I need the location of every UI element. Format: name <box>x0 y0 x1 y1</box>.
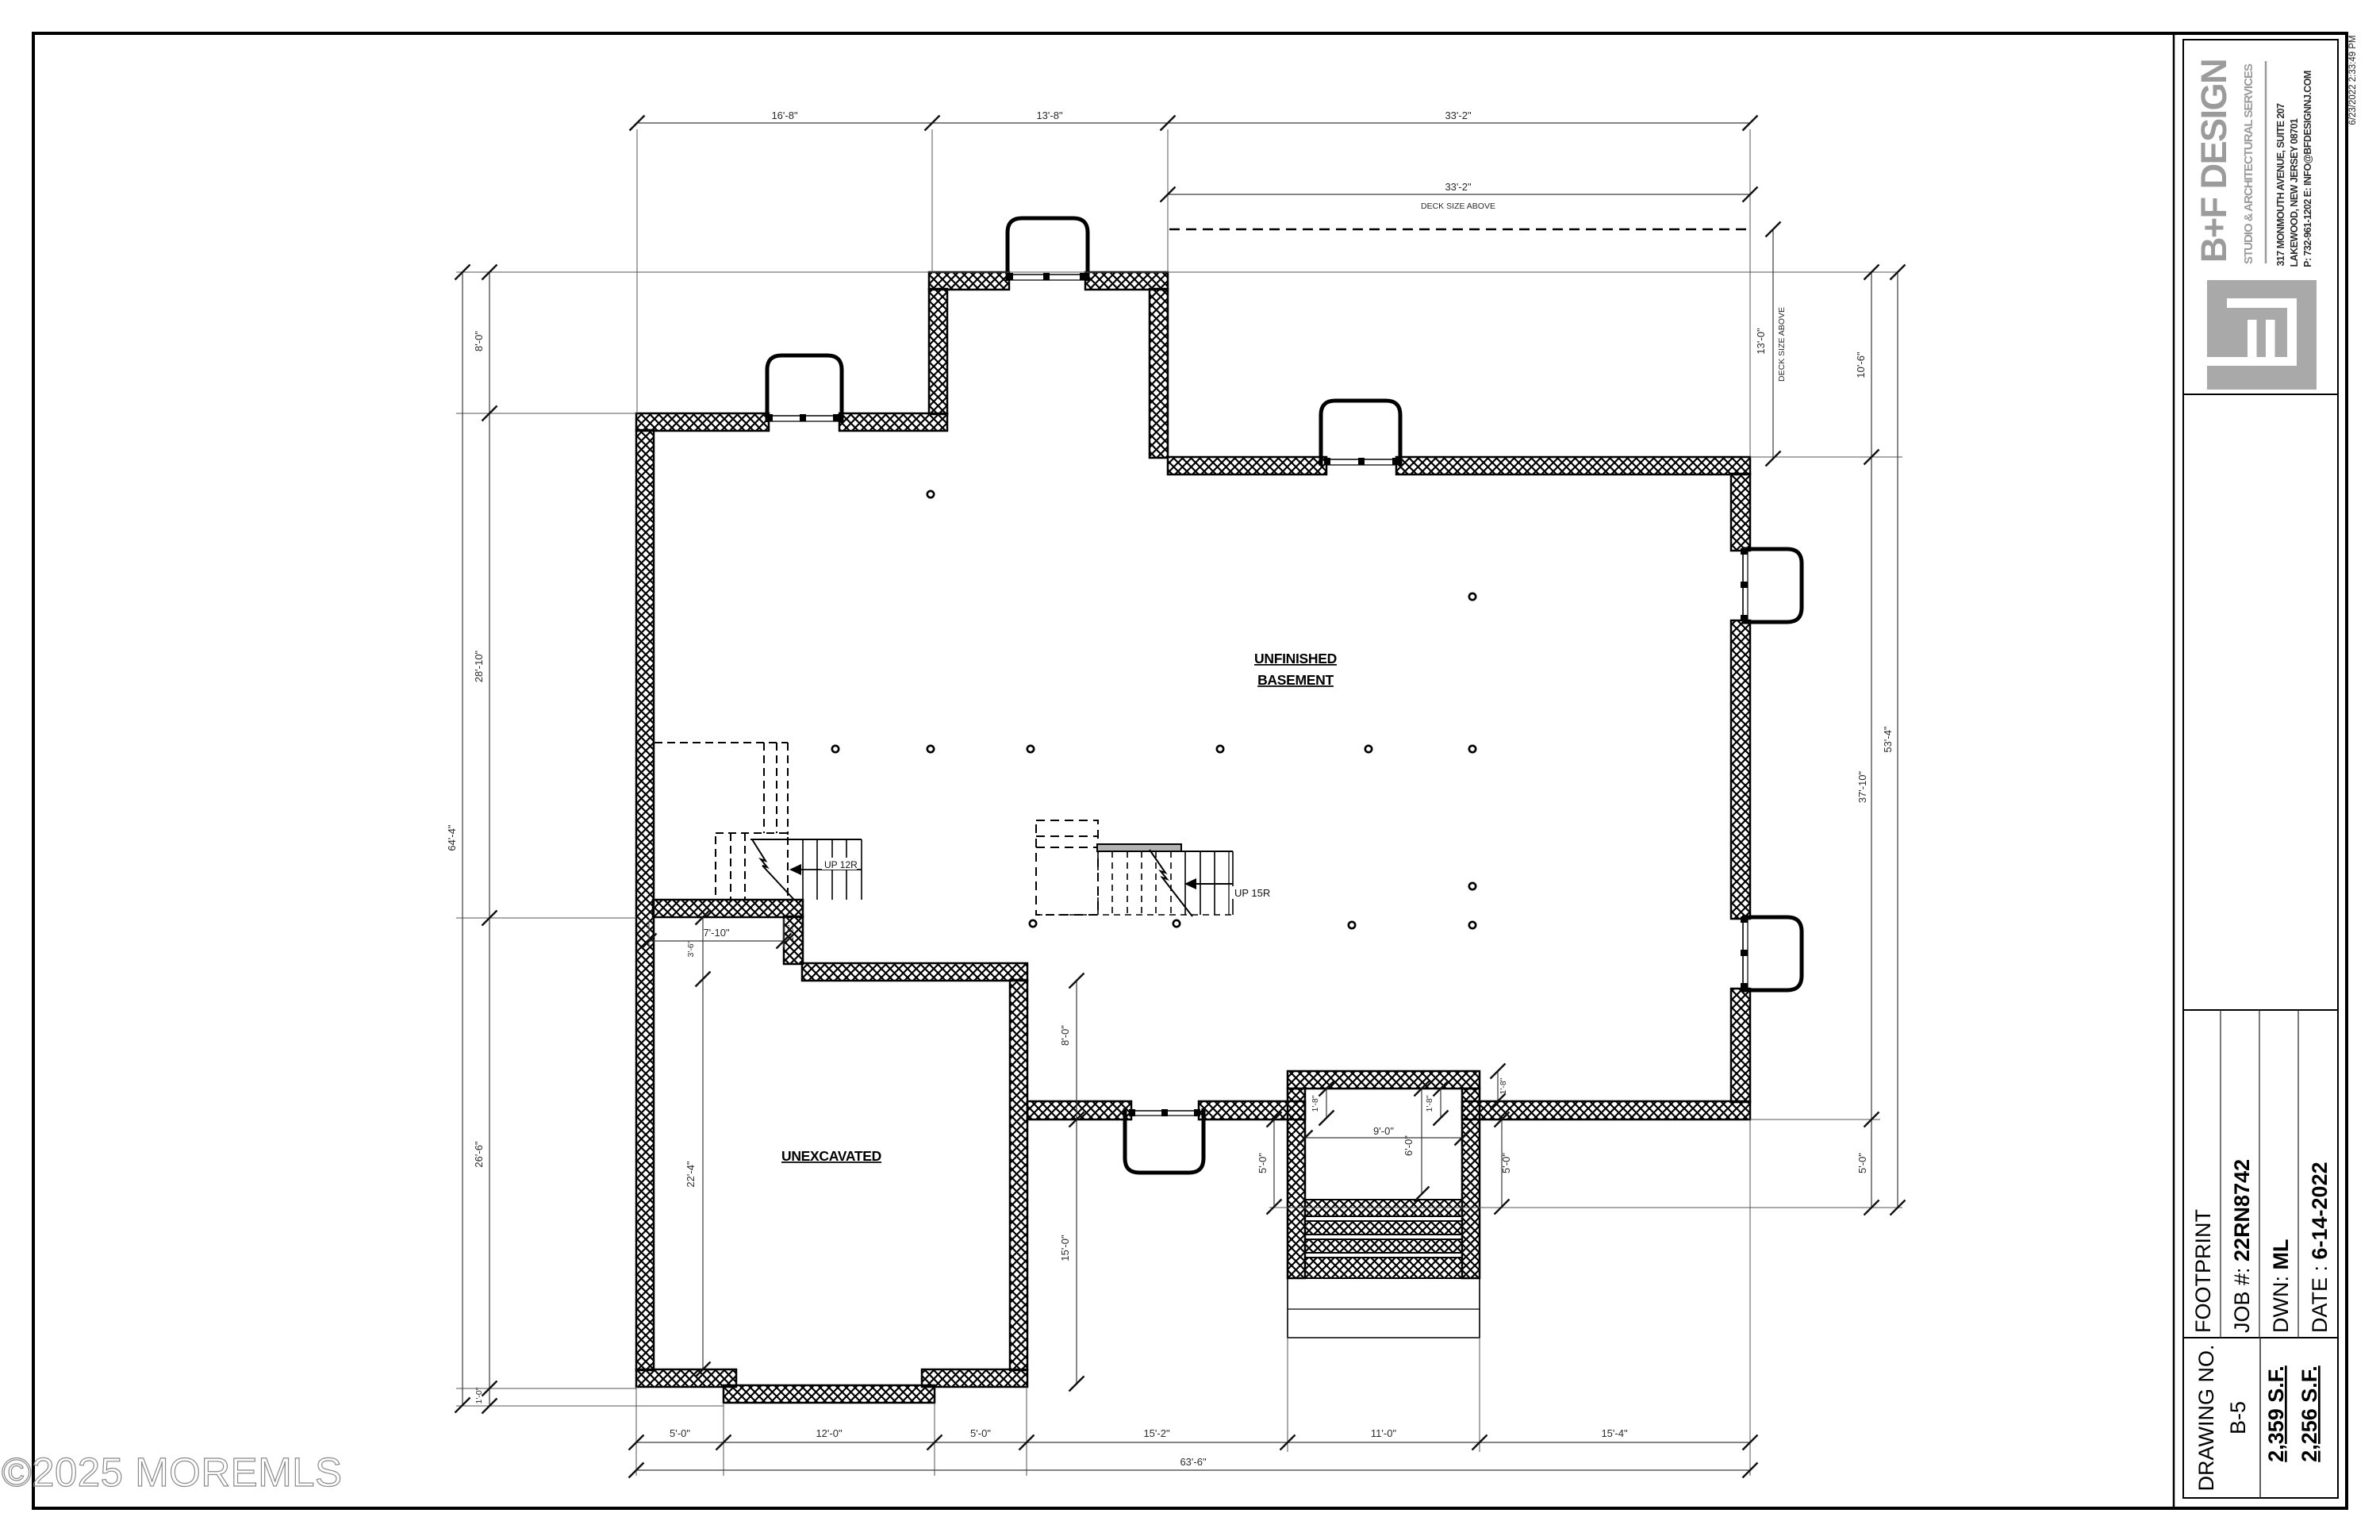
svg-text:1'-0": 1'-0" <box>474 1387 484 1404</box>
svg-text:53'-4": 53'-4" <box>1882 726 1894 753</box>
svg-text:UNFINISHED: UNFINISHED <box>1254 651 1337 666</box>
svg-text:15'-2": 15'-2" <box>1143 1427 1170 1439</box>
svg-text:1'-8": 1'-8" <box>1311 1095 1320 1112</box>
svg-text:2,256 S.F.: 2,256 S.F. <box>2297 1365 2321 1462</box>
svg-text:37'-10": 37'-10" <box>1856 770 1868 803</box>
svg-text:1'-8": 1'-8" <box>1499 1077 1508 1094</box>
svg-text:3'-6": 3'-6" <box>686 940 696 957</box>
svg-text:7'-10": 7'-10" <box>703 927 730 939</box>
svg-text:LAKEWOOD, NEW JERSEY 08701: LAKEWOOD, NEW JERSEY 08701 <box>2289 118 2300 267</box>
svg-text:UP 12R: UP 12R <box>824 859 858 870</box>
svg-text:15'-0": 15'-0" <box>1059 1235 1071 1262</box>
svg-text:P: 732-961-1202 E: INFO@BFDES: P: 732-961-1202 E: INFO@BFDESIGNNJ.COM <box>2302 71 2313 267</box>
svg-text:B-5: B-5 <box>2226 1401 2250 1434</box>
svg-text:63'-6": 63'-6" <box>1180 1456 1207 1468</box>
svg-text:1'-8": 1'-8" <box>1425 1095 1434 1112</box>
svg-text:33'-2": 33'-2" <box>1445 109 1472 121</box>
svg-text:DWN: ML: DWN: ML <box>2269 1239 2293 1333</box>
svg-text:9'-0": 9'-0" <box>1373 1125 1394 1137</box>
svg-text:317 MONMOUTH AVENUE, SUITE 207: 317 MONMOUTH AVENUE, SUITE 207 <box>2275 103 2286 267</box>
svg-text:6'-0": 6'-0" <box>1403 1135 1415 1156</box>
svg-text:33'-2": 33'-2" <box>1445 181 1472 193</box>
svg-text:13'-0": 13'-0" <box>1755 328 1767 355</box>
svg-text:B+F DESIGN: B+F DESIGN <box>2194 60 2234 263</box>
svg-text:UP 15R: UP 15R <box>1234 887 1270 899</box>
svg-text:12'-0": 12'-0" <box>816 1427 843 1439</box>
svg-text:5'-0": 5'-0" <box>1500 1153 1512 1173</box>
svg-text:DATE : 6-14-2022: DATE : 6-14-2022 <box>2308 1162 2332 1333</box>
svg-text:28'-10": 28'-10" <box>473 650 485 682</box>
svg-text:DECK SIZE ABOVE: DECK SIZE ABOVE <box>1777 307 1787 382</box>
svg-text:1'-0": 1'-0" <box>786 924 796 941</box>
svg-text:13'-8": 13'-8" <box>1036 109 1063 121</box>
svg-text:11'-0": 11'-0" <box>1371 1427 1397 1439</box>
svg-text:6/23/2022 2:33:49 PM: 6/23/2022 2:33:49 PM <box>2348 35 2358 125</box>
svg-text:26'-6": 26'-6" <box>473 1141 485 1168</box>
svg-text:22'-4": 22'-4" <box>685 1161 697 1188</box>
svg-text:8'-0": 8'-0" <box>473 331 485 351</box>
svg-text:10'-6": 10'-6" <box>1855 351 1867 378</box>
svg-text:©2025 MOREMLS: ©2025 MOREMLS <box>2 1450 343 1495</box>
svg-text:5'-0": 5'-0" <box>1257 1153 1269 1173</box>
svg-text:15'-4": 15'-4" <box>1601 1427 1628 1439</box>
svg-text:UNEXCAVATED: UNEXCAVATED <box>781 1148 881 1164</box>
svg-text:DRAWING NO.: DRAWING NO. <box>2194 1345 2218 1492</box>
svg-text:2,359 S.F.: 2,359 S.F. <box>2264 1365 2288 1462</box>
svg-text:DECK SIZE ABOVE: DECK SIZE ABOVE <box>1421 202 1495 211</box>
svg-text:16'-8": 16'-8" <box>771 109 798 121</box>
svg-text:STUDIO & ARCHITECTURAL SERVICE: STUDIO & ARCHITECTURAL SERVICES <box>2242 63 2255 264</box>
svg-text:5'-0": 5'-0" <box>1856 1153 1868 1173</box>
svg-text:JOB #: 22RN8742: JOB #: 22RN8742 <box>2230 1159 2254 1333</box>
svg-text:5'-0": 5'-0" <box>970 1427 991 1439</box>
svg-text:FOOTPRINT: FOOTPRINT <box>2191 1209 2215 1333</box>
svg-text:BASEMENT: BASEMENT <box>1257 672 1334 688</box>
svg-text:8'-0": 8'-0" <box>1059 1025 1071 1046</box>
svg-text:64'-4": 64'-4" <box>446 824 458 851</box>
svg-text:5'-0": 5'-0" <box>670 1427 690 1439</box>
